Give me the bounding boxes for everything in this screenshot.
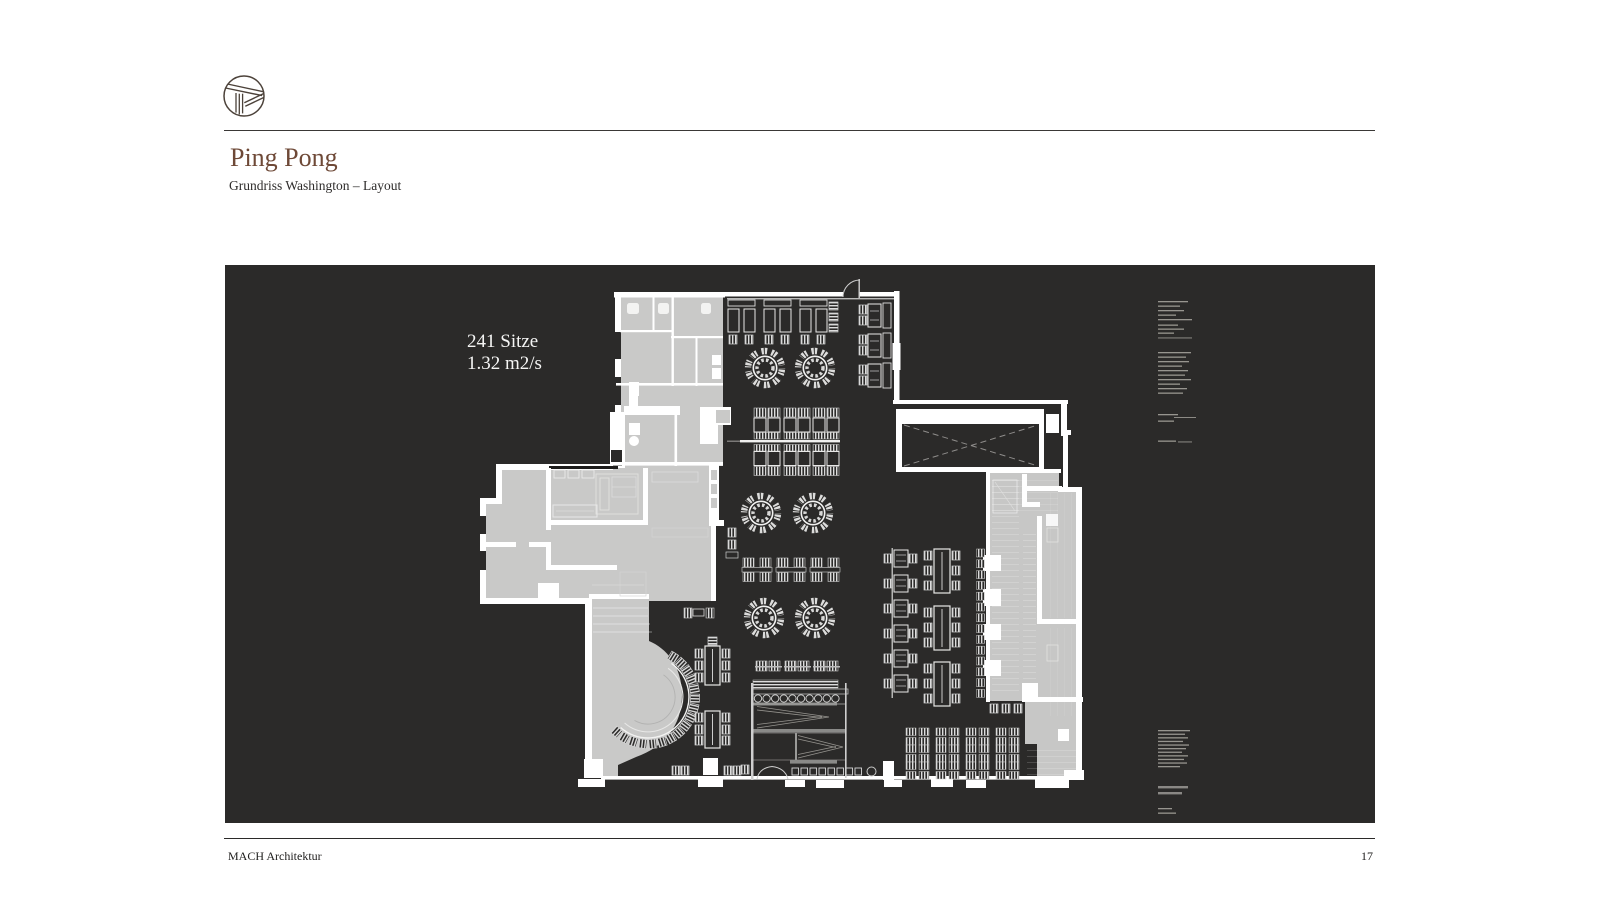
svg-text:241 Sitze: 241 Sitze	[467, 331, 538, 352]
svg-text:1.32 m2/s: 1.32 m2/s	[467, 353, 542, 374]
